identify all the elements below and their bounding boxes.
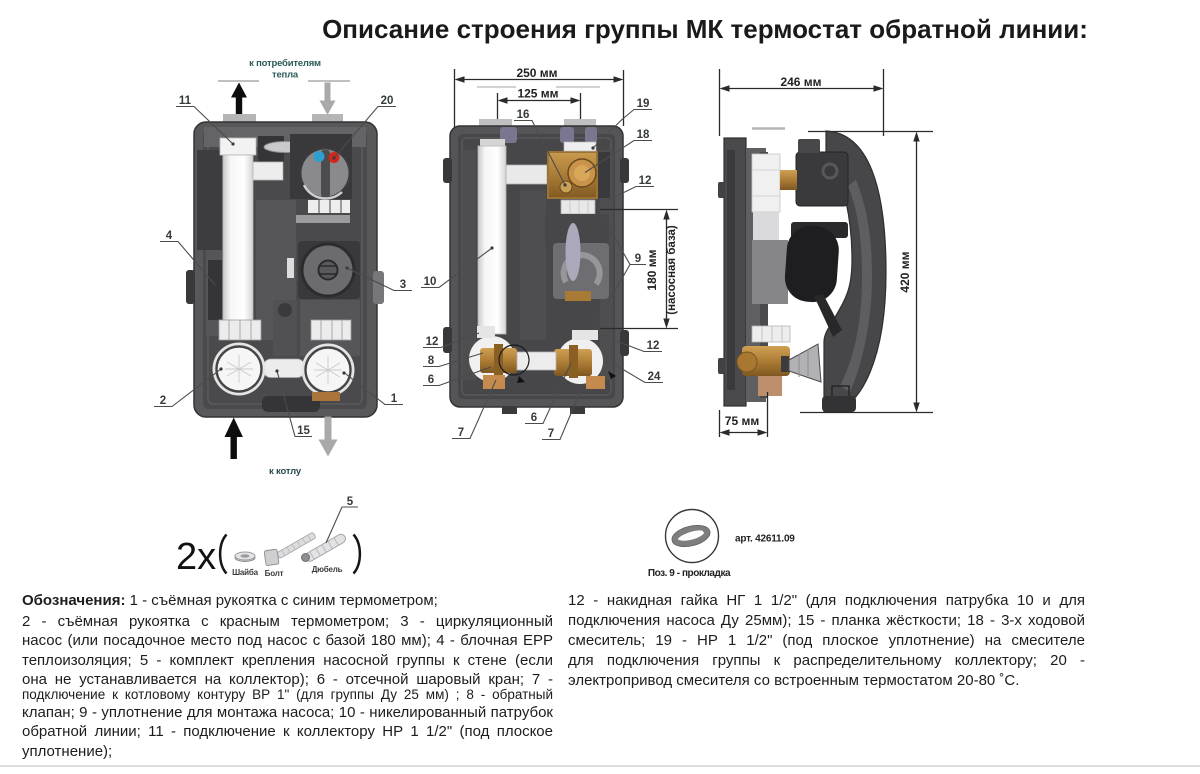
svg-text:2x: 2x <box>176 536 216 578</box>
svg-text:250 мм: 250 мм <box>516 66 557 80</box>
svg-text:16: 16 <box>517 109 530 121</box>
svg-text:Поз. 9 - прокладка: Поз. 9 - прокладка <box>648 568 731 579</box>
svg-text:1: 1 <box>391 393 398 405</box>
svg-text:к котлу: к котлу <box>269 466 302 477</box>
svg-text:15: 15 <box>297 425 310 437</box>
svg-text:19: 19 <box>637 98 650 110</box>
svg-text:7: 7 <box>548 428 554 440</box>
svg-text:к потребителям: к потребителям <box>249 58 321 69</box>
svg-text:180 мм: 180 мм <box>645 249 659 290</box>
svg-text:3: 3 <box>400 279 406 291</box>
svg-text:4: 4 <box>166 230 173 242</box>
svg-text:7: 7 <box>458 427 464 439</box>
svg-text:8: 8 <box>428 355 435 367</box>
svg-text:9: 9 <box>635 253 641 265</box>
svg-text:2: 2 <box>160 395 166 407</box>
svg-text:24: 24 <box>648 371 661 383</box>
svg-text:18: 18 <box>637 129 650 141</box>
svg-text:420 мм: 420 мм <box>898 251 912 292</box>
svg-text:75 мм: 75 мм <box>725 414 760 428</box>
svg-text:12: 12 <box>426 336 439 348</box>
svg-text:12: 12 <box>639 175 652 187</box>
svg-text:125 мм: 125 мм <box>517 87 558 101</box>
svg-text:Шайба: Шайба <box>232 568 259 577</box>
svg-text:6: 6 <box>531 412 537 424</box>
svg-text:20: 20 <box>381 95 394 107</box>
svg-text:арт. 42611.09: арт. 42611.09 <box>735 534 795 545</box>
svg-text:12: 12 <box>647 340 660 352</box>
svg-text:10: 10 <box>424 276 437 288</box>
svg-text:Болт: Болт <box>265 569 284 578</box>
svg-text:6: 6 <box>428 374 434 386</box>
svg-text:246 мм: 246 мм <box>780 75 821 89</box>
svg-text:5: 5 <box>347 496 354 508</box>
svg-text:11: 11 <box>179 95 192 107</box>
svg-text:(насосная база): (насосная база) <box>666 225 678 315</box>
svg-text:тепла: тепла <box>272 70 299 81</box>
svg-text:Дюбель: Дюбель <box>312 565 343 574</box>
